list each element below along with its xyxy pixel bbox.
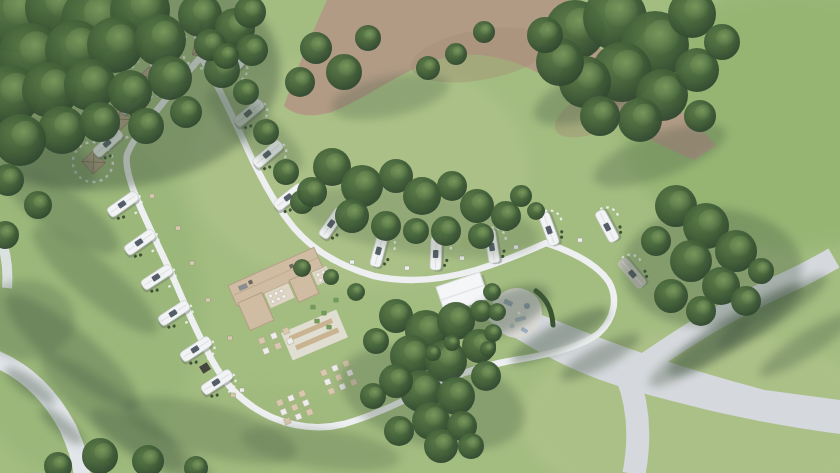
tree-canopy: [654, 279, 688, 313]
canopy-highlight: [94, 443, 113, 462]
canopy-highlight: [430, 347, 438, 355]
tree-canopy: [416, 56, 440, 80]
canopy-highlight: [192, 459, 204, 471]
canopy-highlight: [757, 261, 771, 275]
canopy-highlight: [140, 113, 159, 132]
tree-canopy: [731, 286, 761, 316]
canopy-highlight: [364, 28, 378, 42]
canopy-highlight: [612, 50, 643, 81]
tree-canopy: [431, 216, 461, 246]
canopy-highlight: [311, 36, 328, 53]
canopy-highlight: [480, 24, 491, 35]
tree-canopy: [641, 226, 671, 256]
tree-canopy: [425, 345, 441, 361]
tree-canopy: [748, 258, 774, 284]
tree-canopy: [148, 56, 192, 100]
canopy-highlight: [414, 375, 436, 397]
camp-furniture: [150, 194, 155, 198]
canopy-highlight: [152, 21, 179, 48]
tree-canopy: [403, 177, 441, 215]
canopy-highlight: [338, 59, 357, 78]
canopy-highlight: [242, 82, 256, 96]
canopy-highlight: [539, 22, 558, 41]
tree-canopy: [510, 185, 532, 207]
canopy-highlight: [457, 415, 473, 431]
tree-canopy: [326, 54, 362, 90]
canopy-highlight: [369, 386, 383, 400]
canopy-highlight: [222, 46, 236, 60]
tree-canopy: [437, 171, 467, 201]
canopy-highlight: [472, 193, 490, 211]
canopy-highlight: [391, 368, 409, 386]
camp-furniture: [176, 226, 181, 230]
canopy-highlight: [696, 300, 712, 316]
canopy-highlight: [690, 54, 713, 77]
tree-canopy: [170, 96, 202, 128]
canopy-highlight: [450, 307, 470, 327]
canopy-highlight: [54, 456, 69, 471]
canopy-highlight: [262, 122, 276, 136]
tree-canopy: [580, 96, 620, 136]
tree-canopy: [300, 32, 332, 64]
tree-canopy: [484, 324, 502, 342]
canopy-highlight: [245, 0, 262, 17]
tree-canopy: [347, 283, 365, 301]
canopy-highlight: [633, 104, 656, 127]
campground-aerial-view: [0, 0, 840, 473]
tree-canopy: [480, 341, 496, 357]
tree-canopy: [468, 223, 494, 249]
tree-canopy: [128, 108, 164, 144]
canopy-highlight: [715, 272, 735, 292]
canopy-highlight: [481, 365, 497, 381]
canopy-highlight: [695, 104, 712, 121]
canopy-highlight: [450, 382, 470, 402]
tree-canopy: [403, 218, 429, 244]
tree-canopy: [323, 269, 339, 285]
tree-canopy: [458, 433, 484, 459]
canopy-highlight: [3, 168, 20, 185]
canopy-highlight: [684, 245, 706, 267]
canopy-highlight: [517, 188, 528, 199]
tree-canopy: [273, 159, 299, 185]
canopy-highlight: [391, 163, 409, 181]
camp-furniture: [231, 393, 236, 397]
canopy-highlight: [404, 340, 426, 362]
canopy-highlight: [494, 305, 503, 314]
canopy-highlight: [355, 170, 377, 192]
tree-canopy: [488, 303, 506, 321]
canopy-highlight: [123, 76, 146, 99]
tree-canopy: [82, 438, 118, 473]
canopy-highlight: [489, 285, 498, 294]
tree-canopy: [80, 102, 120, 142]
tree-canopy: [24, 191, 52, 219]
canopy-highlight: [247, 38, 264, 55]
tree-canopy: [253, 119, 279, 145]
canopy-highlight: [477, 226, 491, 240]
tree-canopy: [684, 100, 716, 132]
canopy-highlight: [741, 290, 757, 306]
canopy-highlight: [452, 46, 463, 57]
canopy-highlight: [669, 190, 691, 212]
tree-canopy: [355, 25, 381, 51]
tree-canopy: [460, 189, 494, 223]
canopy-highlight: [425, 407, 445, 427]
tree-canopy: [471, 361, 501, 391]
tree-canopy: [285, 67, 315, 97]
canopy-highlight: [729, 235, 751, 257]
canopy-highlight: [651, 230, 667, 246]
camp-furniture: [322, 311, 327, 315]
camp-furniture: [334, 298, 339, 302]
canopy-highlight: [477, 303, 488, 314]
camp-furniture: [190, 261, 195, 265]
canopy-highlight: [441, 220, 457, 236]
tree-canopy: [236, 34, 268, 66]
canopy-highlight: [299, 261, 308, 270]
canopy-highlight: [654, 76, 681, 103]
canopy-highlight: [347, 203, 365, 221]
canopy-highlight: [12, 121, 39, 148]
canopy-highlight: [1, 225, 16, 240]
camp-furniture: [228, 336, 233, 340]
tree-canopy: [213, 43, 239, 69]
canopy-highlight: [666, 283, 684, 301]
canopy-highlight: [353, 285, 362, 294]
tree-canopy: [384, 416, 414, 446]
canopy-highlight: [163, 62, 186, 85]
canopy-highlight: [54, 112, 79, 137]
canopy-highlight: [485, 343, 493, 351]
canopy-highlight: [412, 221, 426, 235]
canopy-highlight: [490, 326, 499, 335]
canopy-highlight: [449, 337, 457, 345]
camp-furniture: [327, 325, 332, 329]
canopy-highlight: [34, 195, 49, 210]
tree-canopy: [360, 383, 386, 409]
canopy-highlight: [143, 449, 160, 466]
tree-canopy: [483, 283, 501, 301]
tree-canopy: [335, 199, 369, 233]
canopy-highlight: [106, 24, 135, 53]
tree-canopy: [297, 177, 327, 207]
canopy-highlight: [467, 436, 481, 450]
canopy-highlight: [699, 209, 723, 233]
canopy-highlight: [447, 175, 463, 191]
tree-canopy: [108, 70, 152, 114]
canopy-highlight: [394, 420, 410, 436]
canopy-highlight: [295, 71, 311, 87]
camp-furniture: [350, 260, 355, 264]
tree-canopy: [527, 202, 545, 220]
canopy-highlight: [181, 100, 198, 117]
canopy-highlight: [94, 107, 115, 128]
camp-furniture: [311, 305, 316, 309]
tree-canopy: [704, 24, 740, 60]
camp-furniture: [206, 298, 211, 302]
tree-canopy: [64, 59, 116, 111]
tree-canopy: [445, 43, 467, 65]
tree-canopy: [424, 429, 458, 463]
tree-canopy: [444, 335, 460, 351]
tree-canopy: [473, 21, 495, 43]
canopy-highlight: [416, 182, 436, 202]
canopy-highlight: [391, 303, 409, 321]
perimeter-road-south-branch: [626, 374, 638, 473]
canopy-highlight: [328, 271, 336, 279]
canopy-highlight: [436, 433, 454, 451]
camp-furniture: [315, 319, 320, 323]
camp-furniture: [240, 388, 245, 392]
canopy-highlight: [307, 181, 323, 197]
camp-furniture: [405, 266, 410, 270]
canopy-highlight: [82, 66, 109, 93]
site-plan-rendering: [0, 0, 840, 473]
tree-canopy: [233, 79, 259, 105]
tree-canopy: [686, 296, 716, 326]
canopy-highlight: [533, 204, 542, 213]
tree-canopy: [527, 17, 563, 53]
camp-furniture: [578, 238, 583, 242]
canopy-highlight: [594, 101, 615, 122]
tree-canopy: [363, 328, 389, 354]
canopy-highlight: [282, 162, 296, 176]
canopy-highlight: [381, 215, 397, 231]
canopy-highlight: [501, 205, 517, 221]
canopy-highlight: [716, 29, 735, 48]
tree-canopy: [38, 106, 86, 154]
canopy-highlight: [424, 59, 436, 71]
tree-canopy: [618, 98, 662, 142]
canopy-highlight: [326, 153, 346, 173]
tree-canopy: [293, 259, 311, 277]
canopy-highlight: [372, 331, 386, 345]
tree-canopy: [371, 211, 401, 241]
